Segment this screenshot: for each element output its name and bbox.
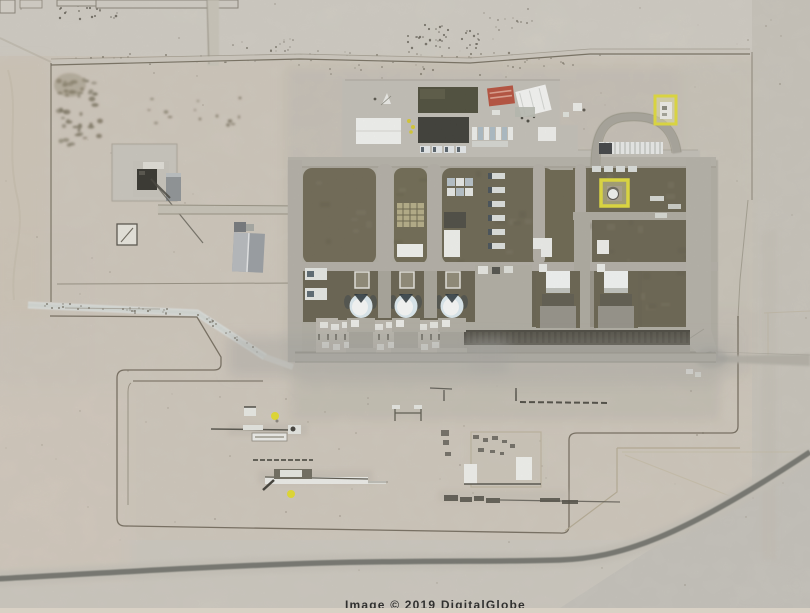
svg-text:Image © 2019 DigitalGlobe: Image © 2019 DigitalGlobe xyxy=(345,598,526,608)
